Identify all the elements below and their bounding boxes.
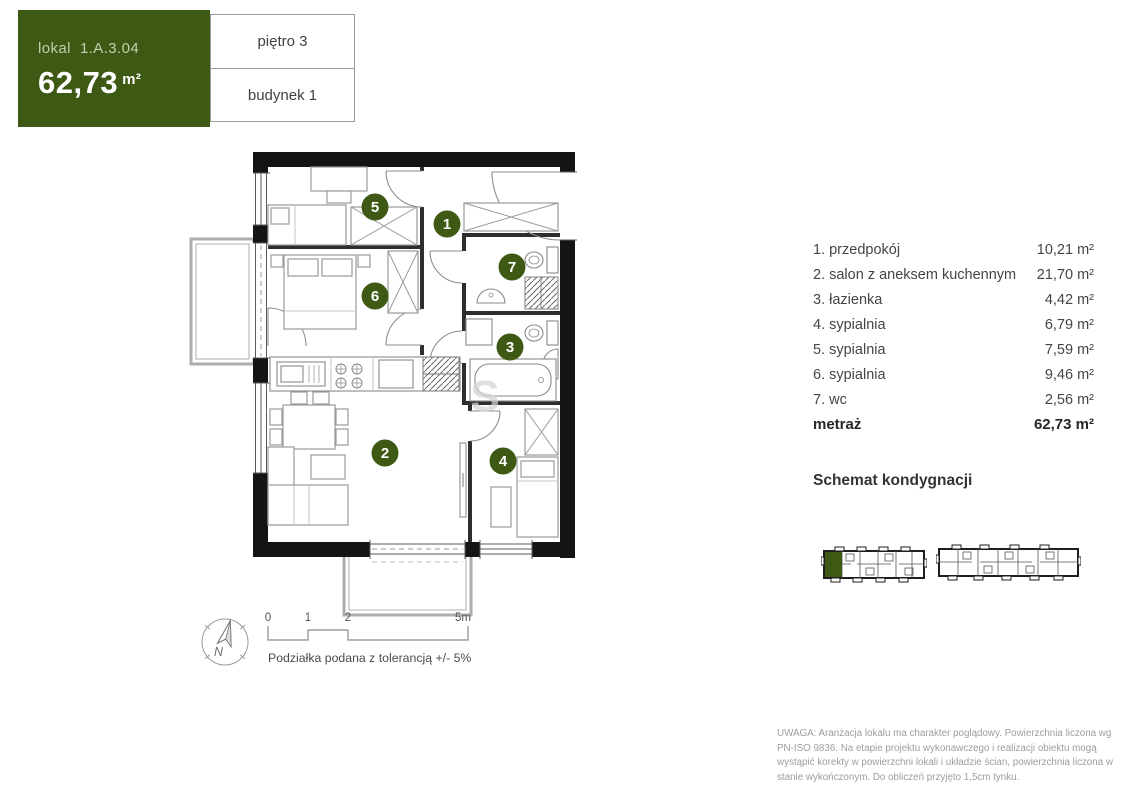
room-area: 2,56 m² bbox=[1045, 392, 1094, 408]
badge-5: 5 bbox=[371, 199, 379, 216]
legend-row: 3. łazienka 4,42 m² bbox=[813, 287, 1094, 312]
disclaimer-text: UWAGA: Aranżacja lokalu ma charakter pog… bbox=[777, 727, 1128, 786]
legend-row: 2. salon z aneksem kuchennym 21,70 m² bbox=[813, 262, 1094, 287]
kitchen-annex bbox=[270, 357, 460, 391]
building-schematic-left bbox=[821, 543, 927, 585]
scale-bar: 0 1 2 5m bbox=[258, 610, 478, 646]
unit-label: lokal 1.A.3.04 bbox=[38, 40, 210, 57]
room-name: 5. sypialnia bbox=[813, 342, 886, 358]
highlighted-unit bbox=[825, 552, 842, 577]
scale-tick-5m: 5m bbox=[455, 612, 471, 624]
room-area: 21,70 m² bbox=[1037, 267, 1094, 283]
badge-4: 4 bbox=[499, 453, 508, 470]
compass-icon: N bbox=[198, 612, 256, 670]
legend-row: 6. sypialnia 9,46 m² bbox=[813, 362, 1094, 387]
balcony-bottom bbox=[344, 555, 471, 615]
unit-area: 62,73m² bbox=[38, 65, 210, 101]
scale-tick-2: 2 bbox=[345, 612, 351, 624]
legend-total-row: metraż 62,73 m² bbox=[813, 412, 1094, 437]
badge-7: 7 bbox=[508, 259, 516, 276]
scale-tolerance-note: Podziałka podana z tolerancją +/- 5% bbox=[268, 651, 471, 665]
badge-6: 6 bbox=[371, 288, 379, 305]
total-label: metraż bbox=[813, 416, 861, 433]
hallway-wardrobe bbox=[464, 203, 558, 231]
furniture-living bbox=[268, 392, 348, 525]
unit-id: 1.A.3.04 bbox=[80, 40, 139, 57]
unit-label-word: lokal bbox=[38, 40, 71, 57]
room-area: 7,59 m² bbox=[1045, 342, 1094, 358]
legend-row: 1. przedpokój 10,21 m² bbox=[813, 237, 1094, 262]
room-name: 7. wc bbox=[813, 392, 847, 408]
floorplan-svg: S 5 1 7 6 3 2 4 bbox=[185, 143, 630, 633]
balcony-left bbox=[191, 239, 254, 364]
room-name: 4. sypialnia bbox=[813, 317, 886, 333]
compass-n-label: N bbox=[214, 645, 224, 659]
schemat-title: Schemat kondygnacji bbox=[813, 472, 972, 490]
room-area: 10,21 m² bbox=[1037, 242, 1094, 258]
room-name: 2. salon z aneksem kuchennym bbox=[813, 267, 1016, 283]
legend-row: 7. wc 2,56 m² bbox=[813, 387, 1094, 412]
room-legend: 1. przedpokój 10,21 m² 2. salon z anekse… bbox=[813, 237, 1094, 437]
room-name: 1. przedpokój bbox=[813, 242, 900, 258]
scale-tick-1: 1 bbox=[305, 612, 311, 624]
badge-1: 1 bbox=[443, 216, 451, 233]
building-cell: budynek 1 bbox=[211, 68, 354, 122]
unit-area-unit: m² bbox=[122, 71, 141, 88]
badge-3: 3 bbox=[506, 339, 514, 356]
info-table: piętro 3 budynek 1 bbox=[210, 14, 355, 122]
floorplan-page: lokal 1.A.3.04 62,73m² piętro 3 budynek … bbox=[0, 0, 1133, 800]
floor-cell: piętro 3 bbox=[211, 15, 354, 68]
room-name: 6. sypialnia bbox=[813, 367, 886, 383]
scale-tick-0: 0 bbox=[265, 612, 271, 624]
furniture-bedroom5 bbox=[268, 167, 417, 245]
unit-card: lokal 1.A.3.04 62,73m² bbox=[18, 10, 210, 127]
room-area: 6,79 m² bbox=[1045, 317, 1094, 333]
room-area: 4,42 m² bbox=[1045, 292, 1094, 308]
room-area: 9,46 m² bbox=[1045, 367, 1094, 383]
legend-row: 4. sypialnia 6,79 m² bbox=[813, 312, 1094, 337]
total-area: 62,73 m² bbox=[1034, 416, 1094, 433]
building-schematic-right bbox=[936, 541, 1081, 583]
furniture-bedroom6 bbox=[271, 251, 418, 329]
room-name: 3. łazienka bbox=[813, 292, 882, 308]
watermark-letter: S bbox=[470, 372, 499, 421]
legend-row: 5. sypialnia 7,59 m² bbox=[813, 337, 1094, 362]
unit-area-value: 62,73 bbox=[38, 65, 118, 100]
badge-2: 2 bbox=[381, 445, 389, 462]
